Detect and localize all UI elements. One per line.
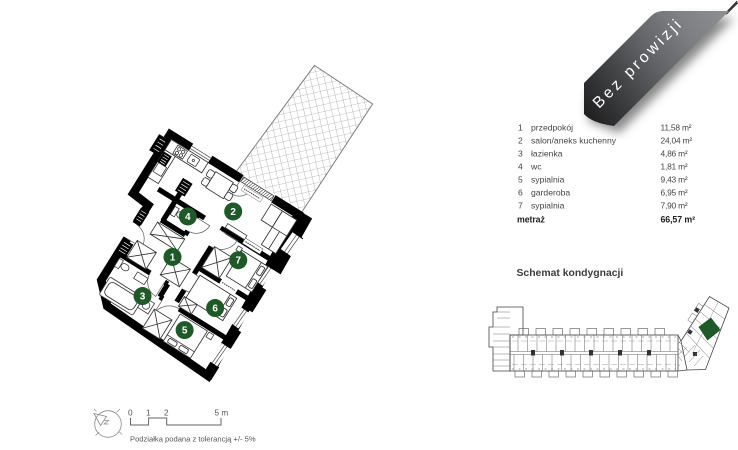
svg-text:metraż: metraż xyxy=(517,215,545,225)
svg-text:1: 1 xyxy=(518,123,523,133)
svg-text:11,58 m²: 11,58 m² xyxy=(661,123,692,133)
svg-text:9,43 m²: 9,43 m² xyxy=(661,175,688,185)
svg-text:salon/aneks kuchenny: salon/aneks kuchenny xyxy=(531,136,617,146)
svg-text:1,81 m²: 1,81 m² xyxy=(661,162,688,172)
svg-text:sypialnia: sypialnia xyxy=(531,175,565,185)
svg-text:2: 2 xyxy=(518,136,523,146)
svg-text:przedpokój: przedpokój xyxy=(531,123,573,133)
svg-text:2: 2 xyxy=(164,409,169,418)
svg-text:6: 6 xyxy=(212,304,218,315)
svg-text:wc: wc xyxy=(530,162,542,172)
svg-text:4: 4 xyxy=(518,162,523,172)
svg-text:5 m: 5 m xyxy=(215,409,229,418)
svg-text:5: 5 xyxy=(182,326,188,337)
svg-text:garderoba: garderoba xyxy=(531,188,570,198)
svg-text:3: 3 xyxy=(140,292,146,303)
svg-text:7: 7 xyxy=(236,256,242,267)
svg-text:6: 6 xyxy=(518,188,523,198)
svg-text:24,04 m²: 24,04 m² xyxy=(661,136,693,146)
svg-text:3: 3 xyxy=(518,149,523,159)
svg-text:66,57 m²: 66,57 m² xyxy=(661,215,696,225)
svg-text:6,95 m²: 6,95 m² xyxy=(661,188,688,198)
svg-text:Podziałka podana z tolerancją: Podziałka podana z tolerancją +/- 5% xyxy=(130,435,256,444)
svg-text:4,86 m²: 4,86 m² xyxy=(661,149,688,159)
svg-text:7: 7 xyxy=(518,201,523,211)
svg-text:5: 5 xyxy=(518,175,523,185)
svg-text:sypialnia: sypialnia xyxy=(531,201,565,211)
svg-text:łazienka: łazienka xyxy=(531,149,563,159)
svg-text:4: 4 xyxy=(185,212,191,223)
svg-text:Schemat kondygnacji: Schemat kondygnacji xyxy=(517,268,624,279)
svg-text:2: 2 xyxy=(230,207,236,218)
svg-text:7,90 m²: 7,90 m² xyxy=(661,201,688,211)
svg-text:1: 1 xyxy=(146,409,151,418)
svg-text:1: 1 xyxy=(170,252,176,263)
svg-text:0: 0 xyxy=(128,409,133,418)
